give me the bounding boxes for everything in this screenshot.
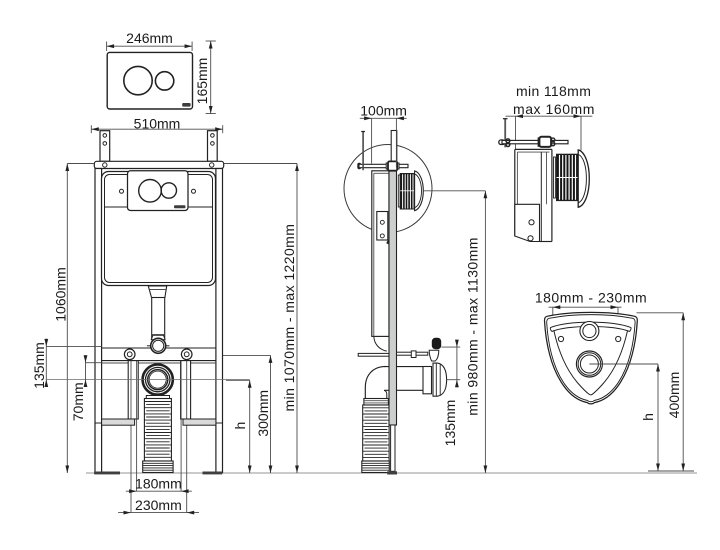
svg-text:70mm: 70mm bbox=[70, 382, 86, 421]
svg-text:230mm: 230mm bbox=[135, 497, 182, 513]
svg-text:246mm: 246mm bbox=[126, 30, 173, 46]
svg-text:180mm - 230mm: 180mm - 230mm bbox=[535, 290, 647, 306]
svg-text:h: h bbox=[640, 413, 656, 421]
svg-text:180mm: 180mm bbox=[135, 475, 182, 491]
svg-text:min 980mm - max 1130mm: min 980mm - max 1130mm bbox=[464, 237, 480, 416]
svg-text:165mm: 165mm bbox=[194, 58, 210, 105]
svg-text:h: h bbox=[232, 422, 248, 430]
svg-text:1060mm: 1060mm bbox=[52, 267, 68, 321]
svg-text:135mm: 135mm bbox=[442, 400, 458, 447]
svg-text:min 1070mm - max 1220mm: min 1070mm - max 1220mm bbox=[281, 224, 297, 412]
svg-text:max 160mm: max 160mm bbox=[513, 101, 595, 117]
svg-text:400mm: 400mm bbox=[666, 372, 682, 419]
svg-text:100mm: 100mm bbox=[360, 102, 407, 118]
svg-text:300mm: 300mm bbox=[255, 390, 271, 437]
svg-text:135mm: 135mm bbox=[31, 342, 47, 389]
svg-text:min 118mm: min 118mm bbox=[516, 83, 591, 99]
